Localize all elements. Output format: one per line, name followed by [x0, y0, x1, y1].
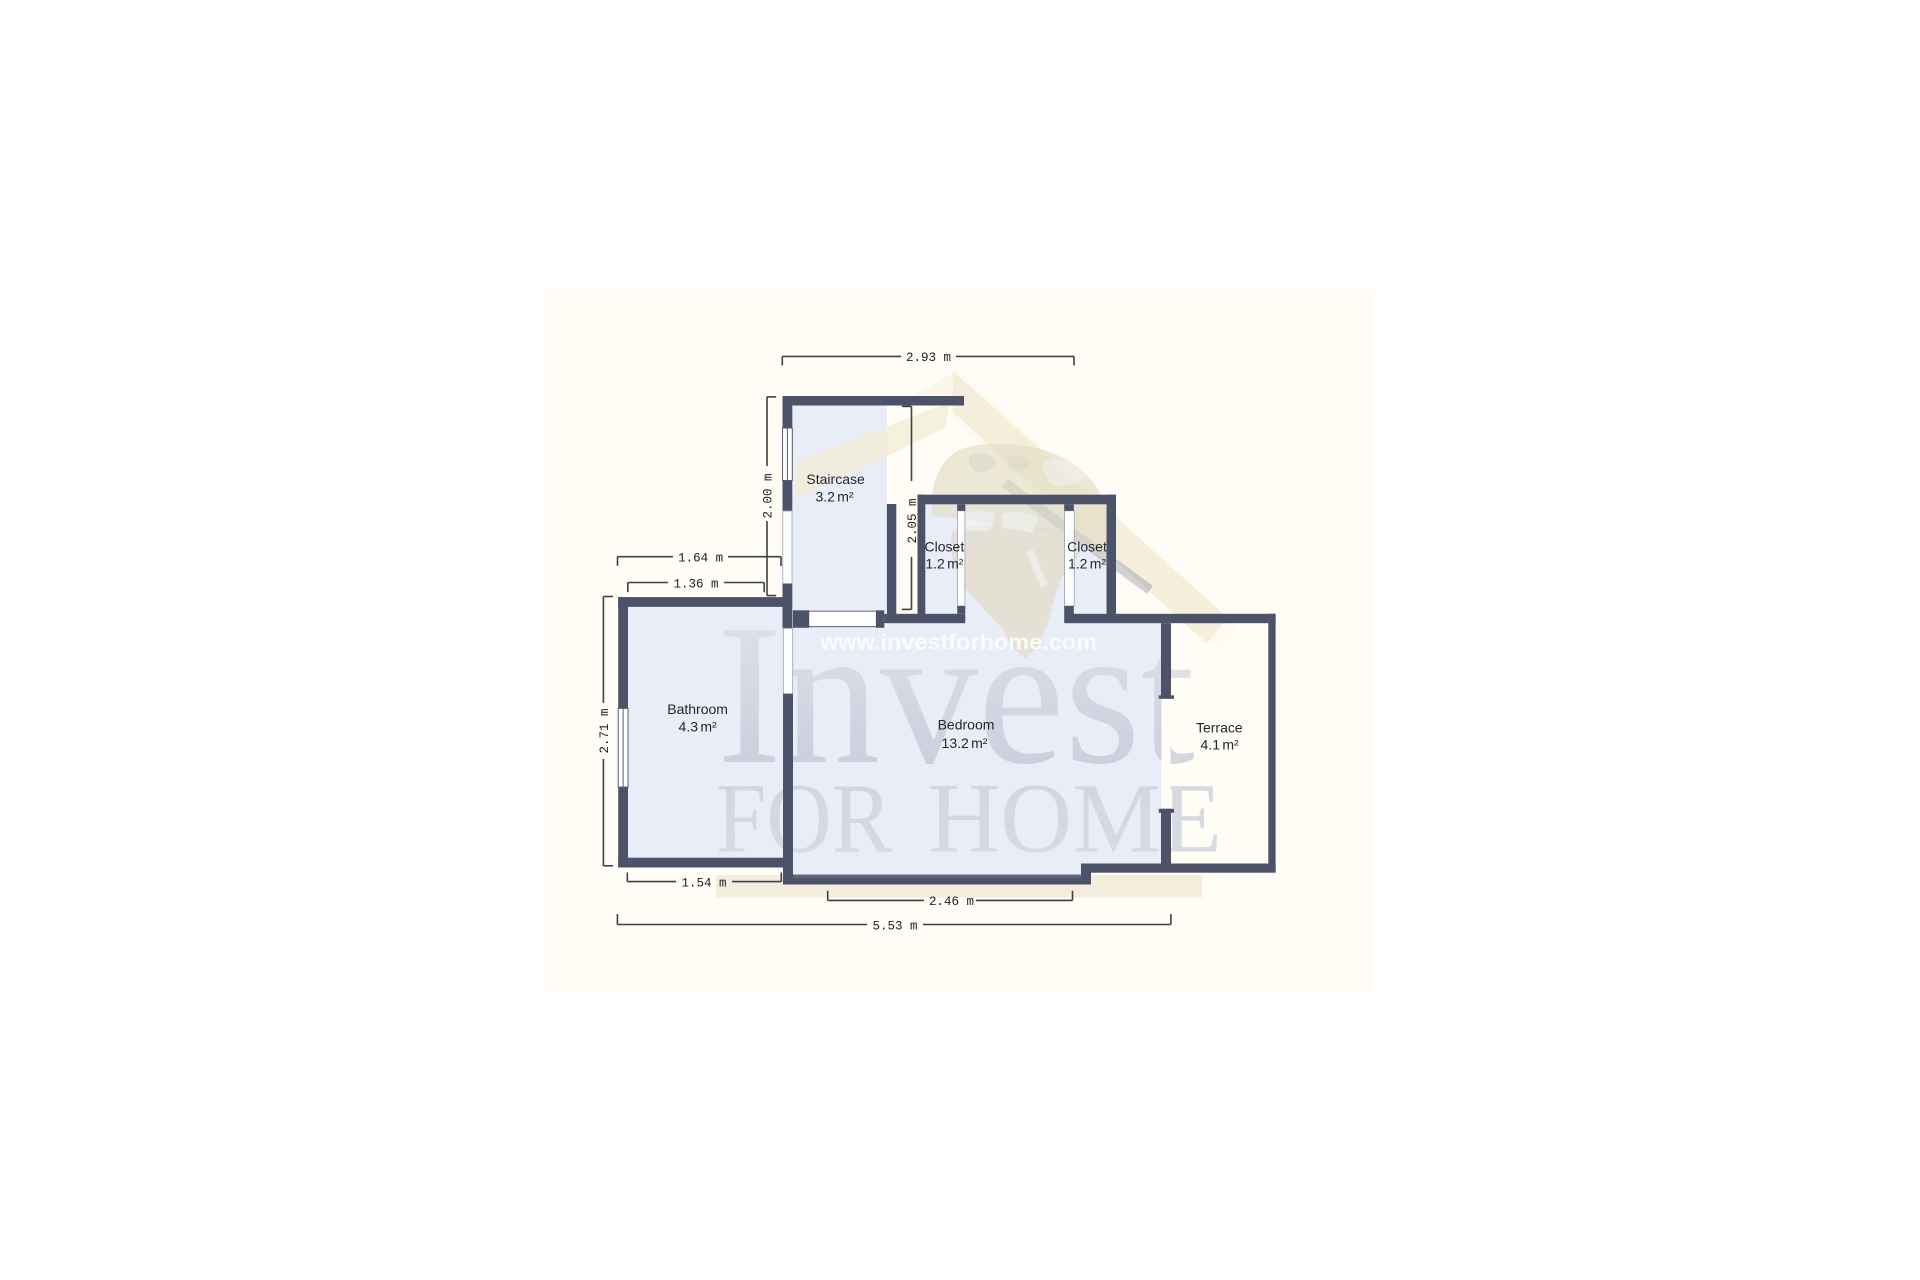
svg-text:4.3 m²: 4.3 m²: [679, 718, 717, 734]
svg-text:2.46 m: 2.46 m: [929, 895, 974, 909]
svg-text:Closet: Closet: [1067, 539, 1107, 555]
svg-text:1.2 m²: 1.2 m²: [1068, 555, 1106, 571]
svg-text:Bedroom: Bedroom: [938, 717, 995, 733]
svg-text:HOME: HOME: [928, 763, 1222, 874]
svg-text:2.05 m: 2.05 m: [906, 498, 920, 543]
svg-text:13.2 m²: 13.2 m²: [942, 735, 988, 751]
svg-text:Terrace: Terrace: [1196, 719, 1243, 735]
svg-text:Bathroom: Bathroom: [667, 701, 728, 717]
svg-text:2.71 m: 2.71 m: [598, 708, 612, 753]
svg-text:Closet: Closet: [925, 539, 965, 555]
svg-text:1.2 m²: 1.2 m²: [925, 555, 963, 571]
svg-text:FOR: FOR: [716, 763, 892, 874]
svg-text:5.53 m: 5.53 m: [872, 919, 917, 933]
svg-text:2.00 m: 2.00 m: [762, 473, 776, 518]
svg-text:www.investforhome.com: www.investforhome.com: [819, 630, 1097, 655]
svg-text:Staircase: Staircase: [806, 471, 865, 487]
svg-text:1.36 m: 1.36 m: [673, 577, 718, 591]
svg-text:1.64 m: 1.64 m: [678, 552, 723, 566]
svg-text:3.2 m²: 3.2 m²: [815, 488, 853, 504]
svg-text:4.1 m²: 4.1 m²: [1201, 737, 1239, 753]
svg-text:2.93 m: 2.93 m: [906, 351, 951, 365]
svg-text:1.54 m: 1.54 m: [681, 876, 726, 890]
